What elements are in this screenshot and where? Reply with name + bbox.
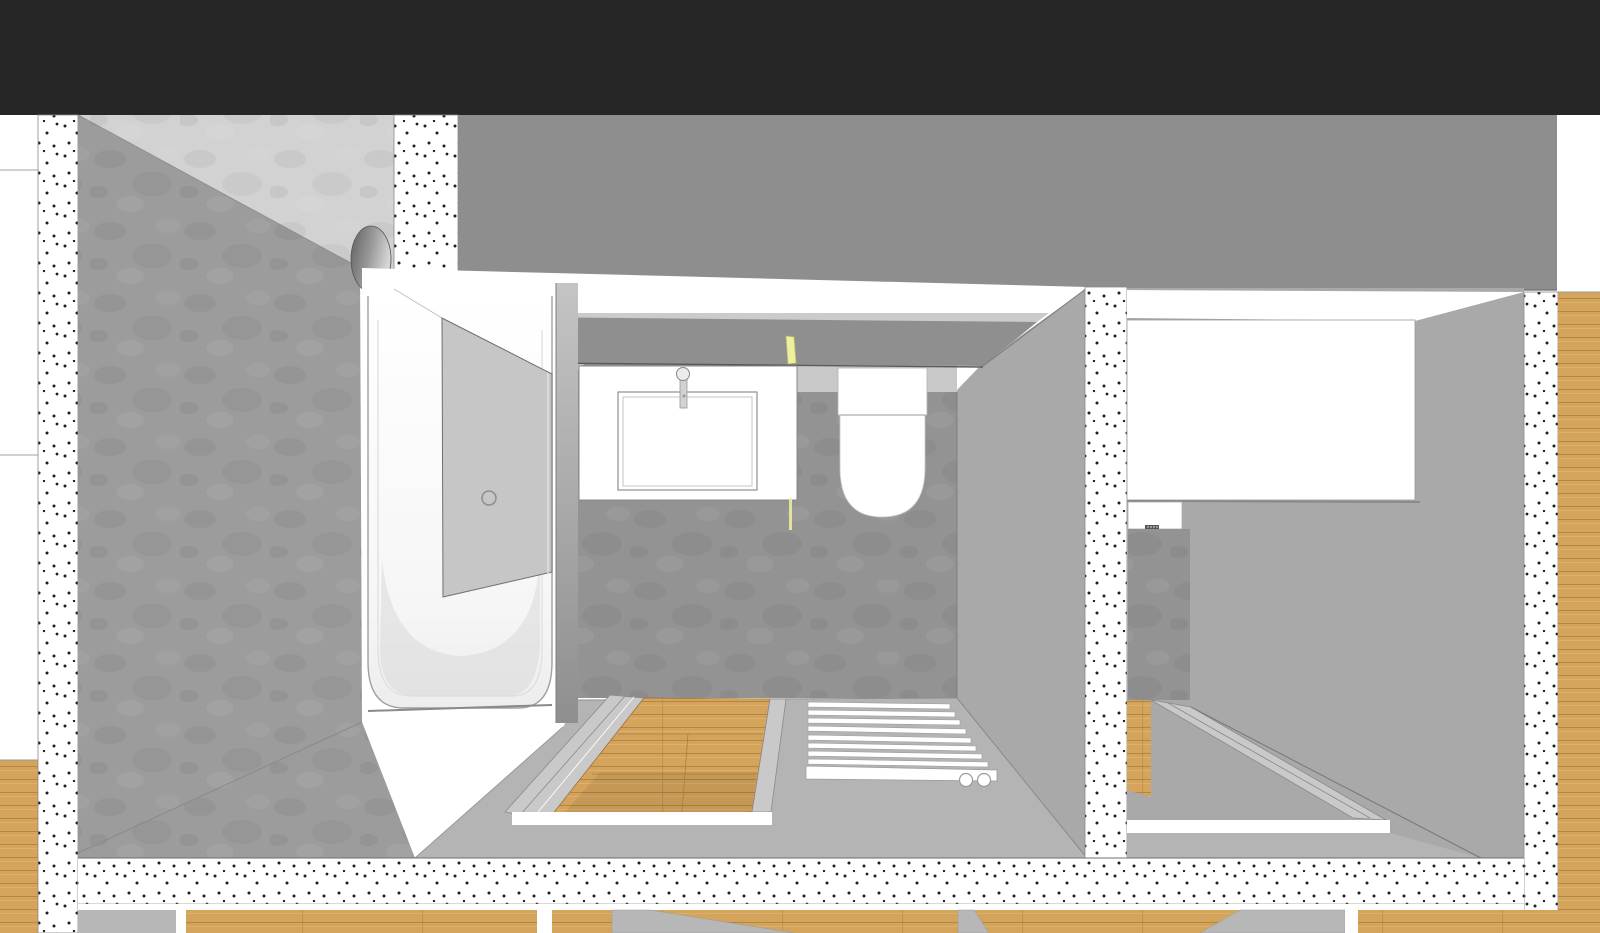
faucet-stem <box>680 379 687 408</box>
insulation-column-2 <box>394 115 458 290</box>
app-window <box>0 0 1600 933</box>
insulation-column-left <box>38 115 78 933</box>
adjacent-pit-front-edge <box>1127 820 1390 833</box>
toilet <box>838 368 927 517</box>
counter-edge-light <box>789 498 792 530</box>
toilet-tank <box>838 368 927 415</box>
grille-dot <box>1153 526 1154 527</box>
led-strip-right <box>786 336 796 364</box>
lower-white-strip <box>176 910 186 933</box>
adjacent-textured-grain <box>1128 529 1190 700</box>
lower-white-strip <box>537 910 552 933</box>
radiator-valve <box>960 774 973 787</box>
adjacent-room <box>1127 288 1524 879</box>
left-wood-cut <box>0 760 38 933</box>
grille-dot <box>1150 526 1151 527</box>
slab-white-line <box>78 904 1524 910</box>
faucet-head <box>677 368 690 381</box>
adjacent-pit-wood <box>1127 700 1151 797</box>
shower-wall-edge <box>556 283 578 723</box>
small-wall-box <box>1128 502 1182 529</box>
bathtub-area <box>362 268 578 723</box>
floor-insulation-band <box>78 858 1524 904</box>
toilet-bowl <box>840 415 925 517</box>
grille-dot <box>1147 526 1148 527</box>
top-right-cut-face <box>1557 115 1600 295</box>
left-wall-cut <box>0 115 38 933</box>
insulation-column-right <box>1524 292 1558 933</box>
grille-dot <box>1156 526 1157 527</box>
floor-slab-section <box>78 858 1558 933</box>
lower-white-strip <box>1345 910 1358 933</box>
upper-wall-band <box>458 115 1557 290</box>
insulation-column-middle <box>1085 287 1127 933</box>
app-header-bar <box>0 0 1600 115</box>
mirror-cabinet <box>1127 320 1415 500</box>
lower-gray-corner <box>78 910 176 933</box>
left-cut-face <box>0 115 38 761</box>
insulation-column-2-fill <box>394 115 458 283</box>
faucet-dot <box>683 395 686 398</box>
radiator-valve <box>978 774 991 787</box>
right-wood-edge <box>1558 292 1600 933</box>
viewport-3d[interactable] <box>0 0 1600 933</box>
sink-basin <box>618 392 757 490</box>
pit-front-edge <box>512 812 772 825</box>
